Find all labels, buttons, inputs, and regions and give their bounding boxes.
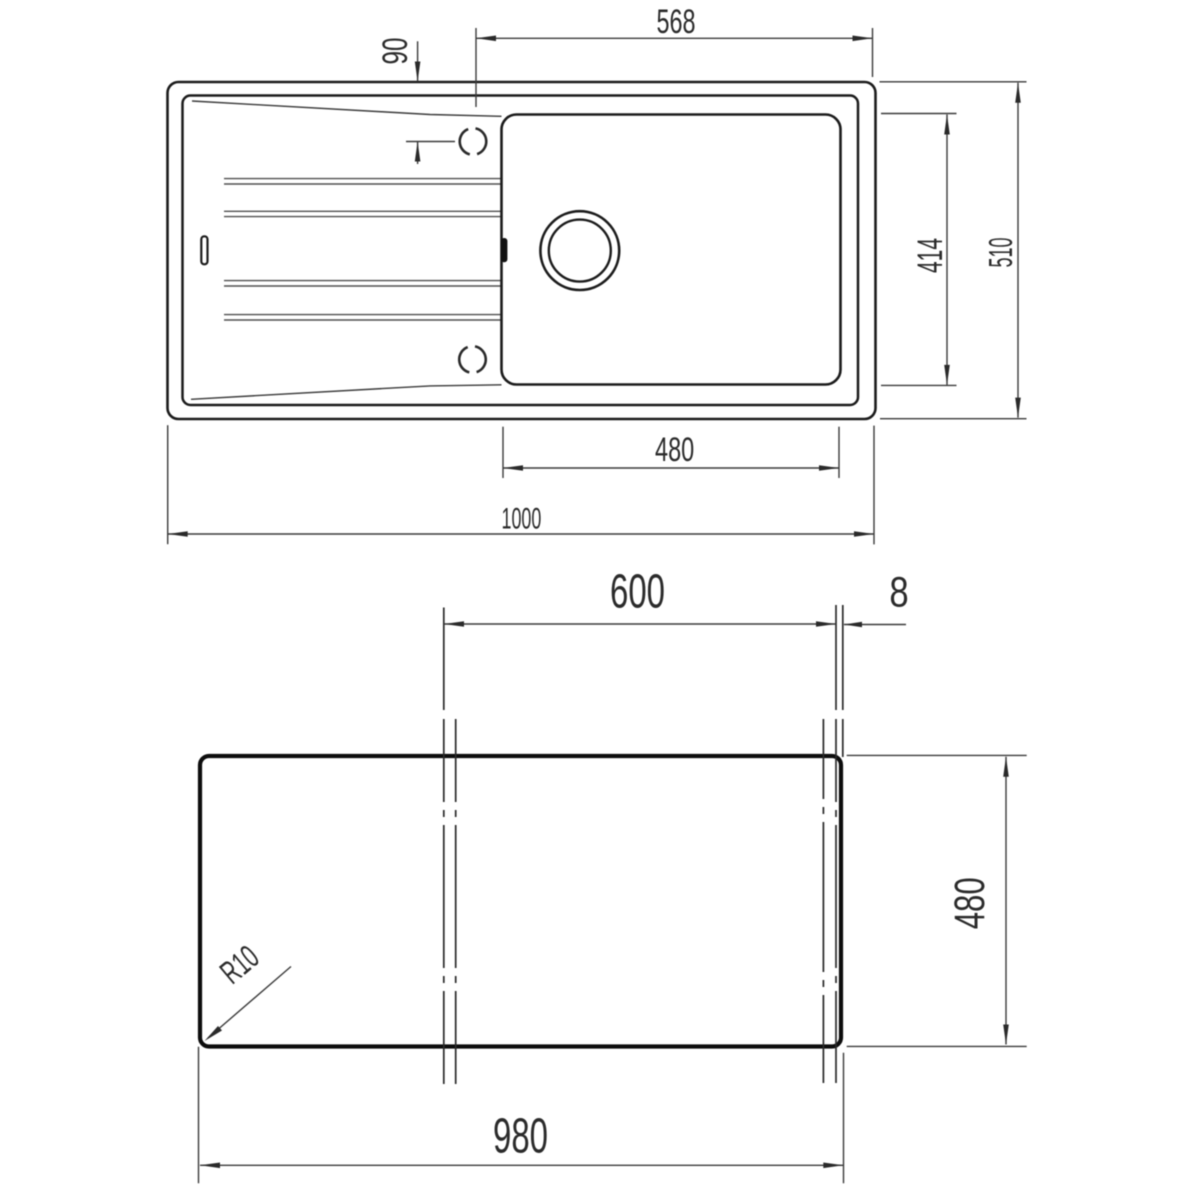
svg-text:568: 568 [657, 3, 696, 41]
svg-text:8: 8 [889, 569, 908, 617]
svg-text:980: 980 [493, 1109, 548, 1163]
svg-text:1000: 1000 [502, 503, 542, 536]
svg-text:480: 480 [655, 431, 694, 469]
svg-text:600: 600 [610, 566, 665, 619]
svg-text:480: 480 [946, 877, 994, 929]
svg-text:414: 414 [910, 238, 950, 273]
svg-text:90: 90 [375, 38, 415, 65]
svg-text:510: 510 [983, 238, 1020, 268]
